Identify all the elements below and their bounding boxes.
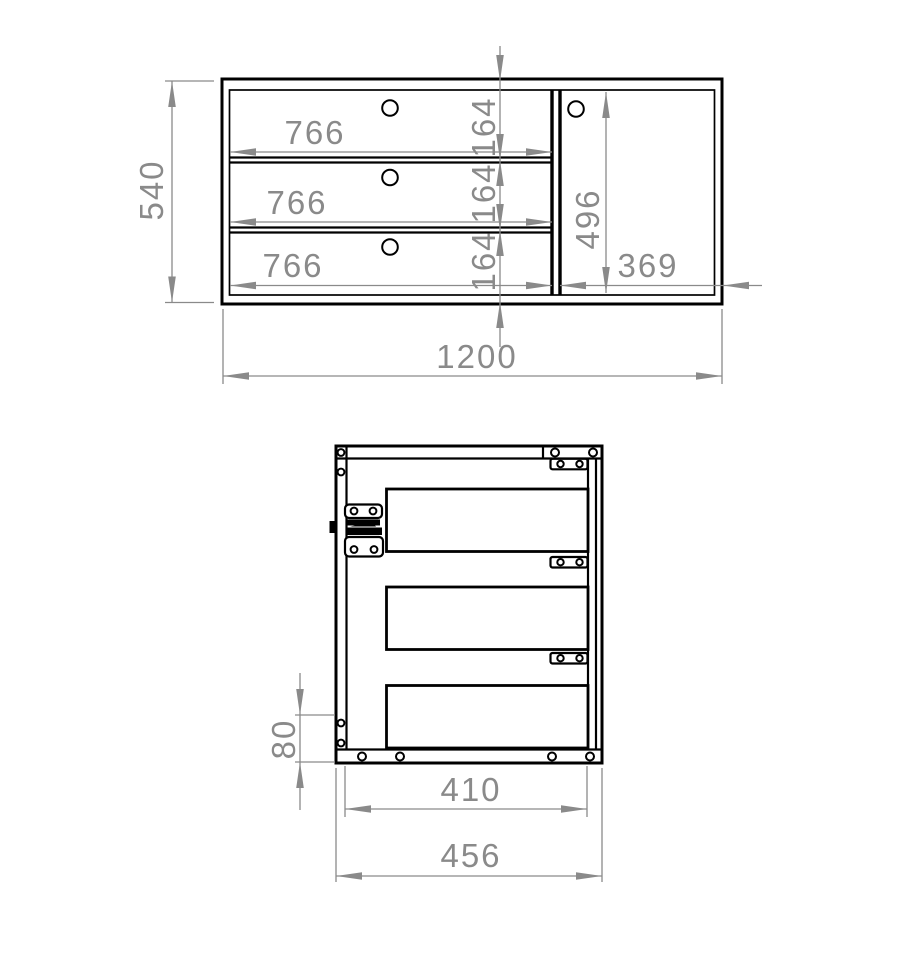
screw-hole (548, 753, 556, 761)
dim-overall-height: 540 (133, 81, 214, 303)
drawer-side-boxes (387, 489, 589, 748)
screw-hole (557, 559, 563, 565)
screw-hole (396, 753, 404, 761)
screw-hole (576, 461, 582, 467)
door-handle-hole (568, 101, 584, 117)
dim-drawer-width-label-1: 766 (284, 114, 345, 151)
arrowhead-right (696, 372, 722, 380)
screw-hole (338, 740, 345, 747)
screw-hole (338, 720, 345, 727)
dim-interior-depth: 410 (345, 766, 587, 817)
screw-hole (358, 753, 366, 761)
dim-bottom-offset: 80 (265, 673, 335, 810)
arrowhead-up (168, 81, 176, 107)
arrowhead-down (168, 277, 176, 303)
side-view: 80 410 456 (265, 446, 602, 882)
drawer-box-2 (387, 587, 589, 650)
drawer-box-1 (387, 489, 589, 552)
dim-door-width-label: 369 (617, 247, 678, 284)
dim-drawer-height-label-1: 164 (465, 96, 502, 157)
hinge-cup-nub (330, 521, 338, 533)
arrowhead-up (496, 302, 504, 328)
screw-hole (351, 546, 358, 553)
screw-hole (557, 461, 563, 467)
drawer-2-handle-hole (382, 170, 398, 186)
screw-hole (551, 449, 559, 457)
screw-hole (589, 449, 597, 457)
drawer-box-3 (387, 686, 589, 749)
hinge-arm-base (346, 528, 383, 536)
arrowhead-left (723, 282, 749, 290)
front-view: 540 164 164 164 766 766 (133, 46, 762, 384)
screw-hole (371, 546, 378, 553)
dim-drawer-width-label-3: 766 (262, 247, 323, 284)
arrowhead-down (296, 689, 304, 715)
drawer-1-handle-hole (382, 100, 398, 116)
bracket-1 (551, 459, 588, 470)
arrowhead-left (336, 872, 362, 880)
screw-hole (576, 655, 582, 661)
arrowhead-right (576, 872, 602, 880)
arrowhead-right (561, 805, 587, 813)
dim-overall-depth-label: 456 (440, 837, 501, 874)
bracket-2 (551, 557, 588, 568)
arrowhead-left (345, 805, 371, 813)
dim-bottom-offset-label: 80 (265, 719, 302, 760)
screw-hole (351, 508, 358, 515)
cabinet-technical-drawing: 540 164 164 164 766 766 (0, 0, 900, 962)
bracket-3 (551, 653, 588, 664)
screw-hole (338, 469, 345, 476)
dim-overall-width-label: 1200 (436, 338, 517, 375)
arrowhead-down (496, 55, 504, 81)
dim-drawer-width-label-2: 766 (266, 184, 327, 221)
dim-overall-height-label: 540 (133, 159, 170, 220)
drawer-3-handle-hole (382, 239, 398, 255)
screw-hole (370, 508, 377, 515)
dim-drawer-height-label-3: 164 (465, 230, 502, 291)
arrowhead-up (296, 762, 304, 788)
dim-door-height-label: 496 (569, 188, 606, 249)
dim-overall-width: 1200 (223, 309, 722, 384)
dim-drawer-height-label-2: 164 (465, 162, 502, 223)
arrowhead-left (223, 372, 249, 380)
screw-hole (586, 753, 594, 761)
screw-hole (557, 655, 563, 661)
dim-interior-depth-label: 410 (440, 771, 501, 808)
screw-hole (338, 449, 345, 456)
screw-hole (576, 559, 582, 565)
